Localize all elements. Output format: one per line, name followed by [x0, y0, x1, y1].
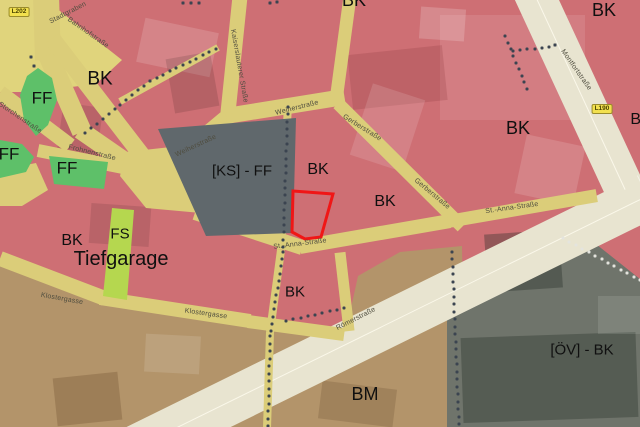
zone-label: FF — [32, 90, 53, 107]
road-shield: L202 — [9, 7, 30, 17]
zone-label: BK — [506, 119, 530, 137]
zone-label: BM — [352, 385, 379, 403]
building-footprint — [598, 296, 640, 334]
building-footprint — [144, 334, 201, 375]
zone-label: BK — [285, 285, 305, 300]
zone-label: BK — [61, 233, 82, 249]
zone-label: BK — [87, 70, 112, 89]
map-canvas[interactable]: StadtgrabenBahnhofstraßeStorchenstraßeFr… — [0, 0, 640, 427]
zone-label: [KS] - FF — [212, 164, 272, 179]
zone-label: FF — [0, 146, 19, 163]
zone-label: [ÖV] - BK — [550, 343, 613, 358]
zone-label: Tiefgarage — [74, 249, 169, 269]
road-shield: L190 — [592, 104, 613, 114]
zone-label: BK — [342, 0, 366, 9]
zone-label: BK — [592, 1, 616, 19]
zone-label: BK — [630, 112, 640, 128]
zone-label: BK — [374, 194, 395, 210]
zone-label: FS — [110, 227, 129, 242]
zone-label: BK — [307, 162, 328, 178]
building-footprint — [419, 6, 466, 41]
zone-label: FF — [57, 160, 78, 177]
building-footprint — [53, 372, 123, 427]
